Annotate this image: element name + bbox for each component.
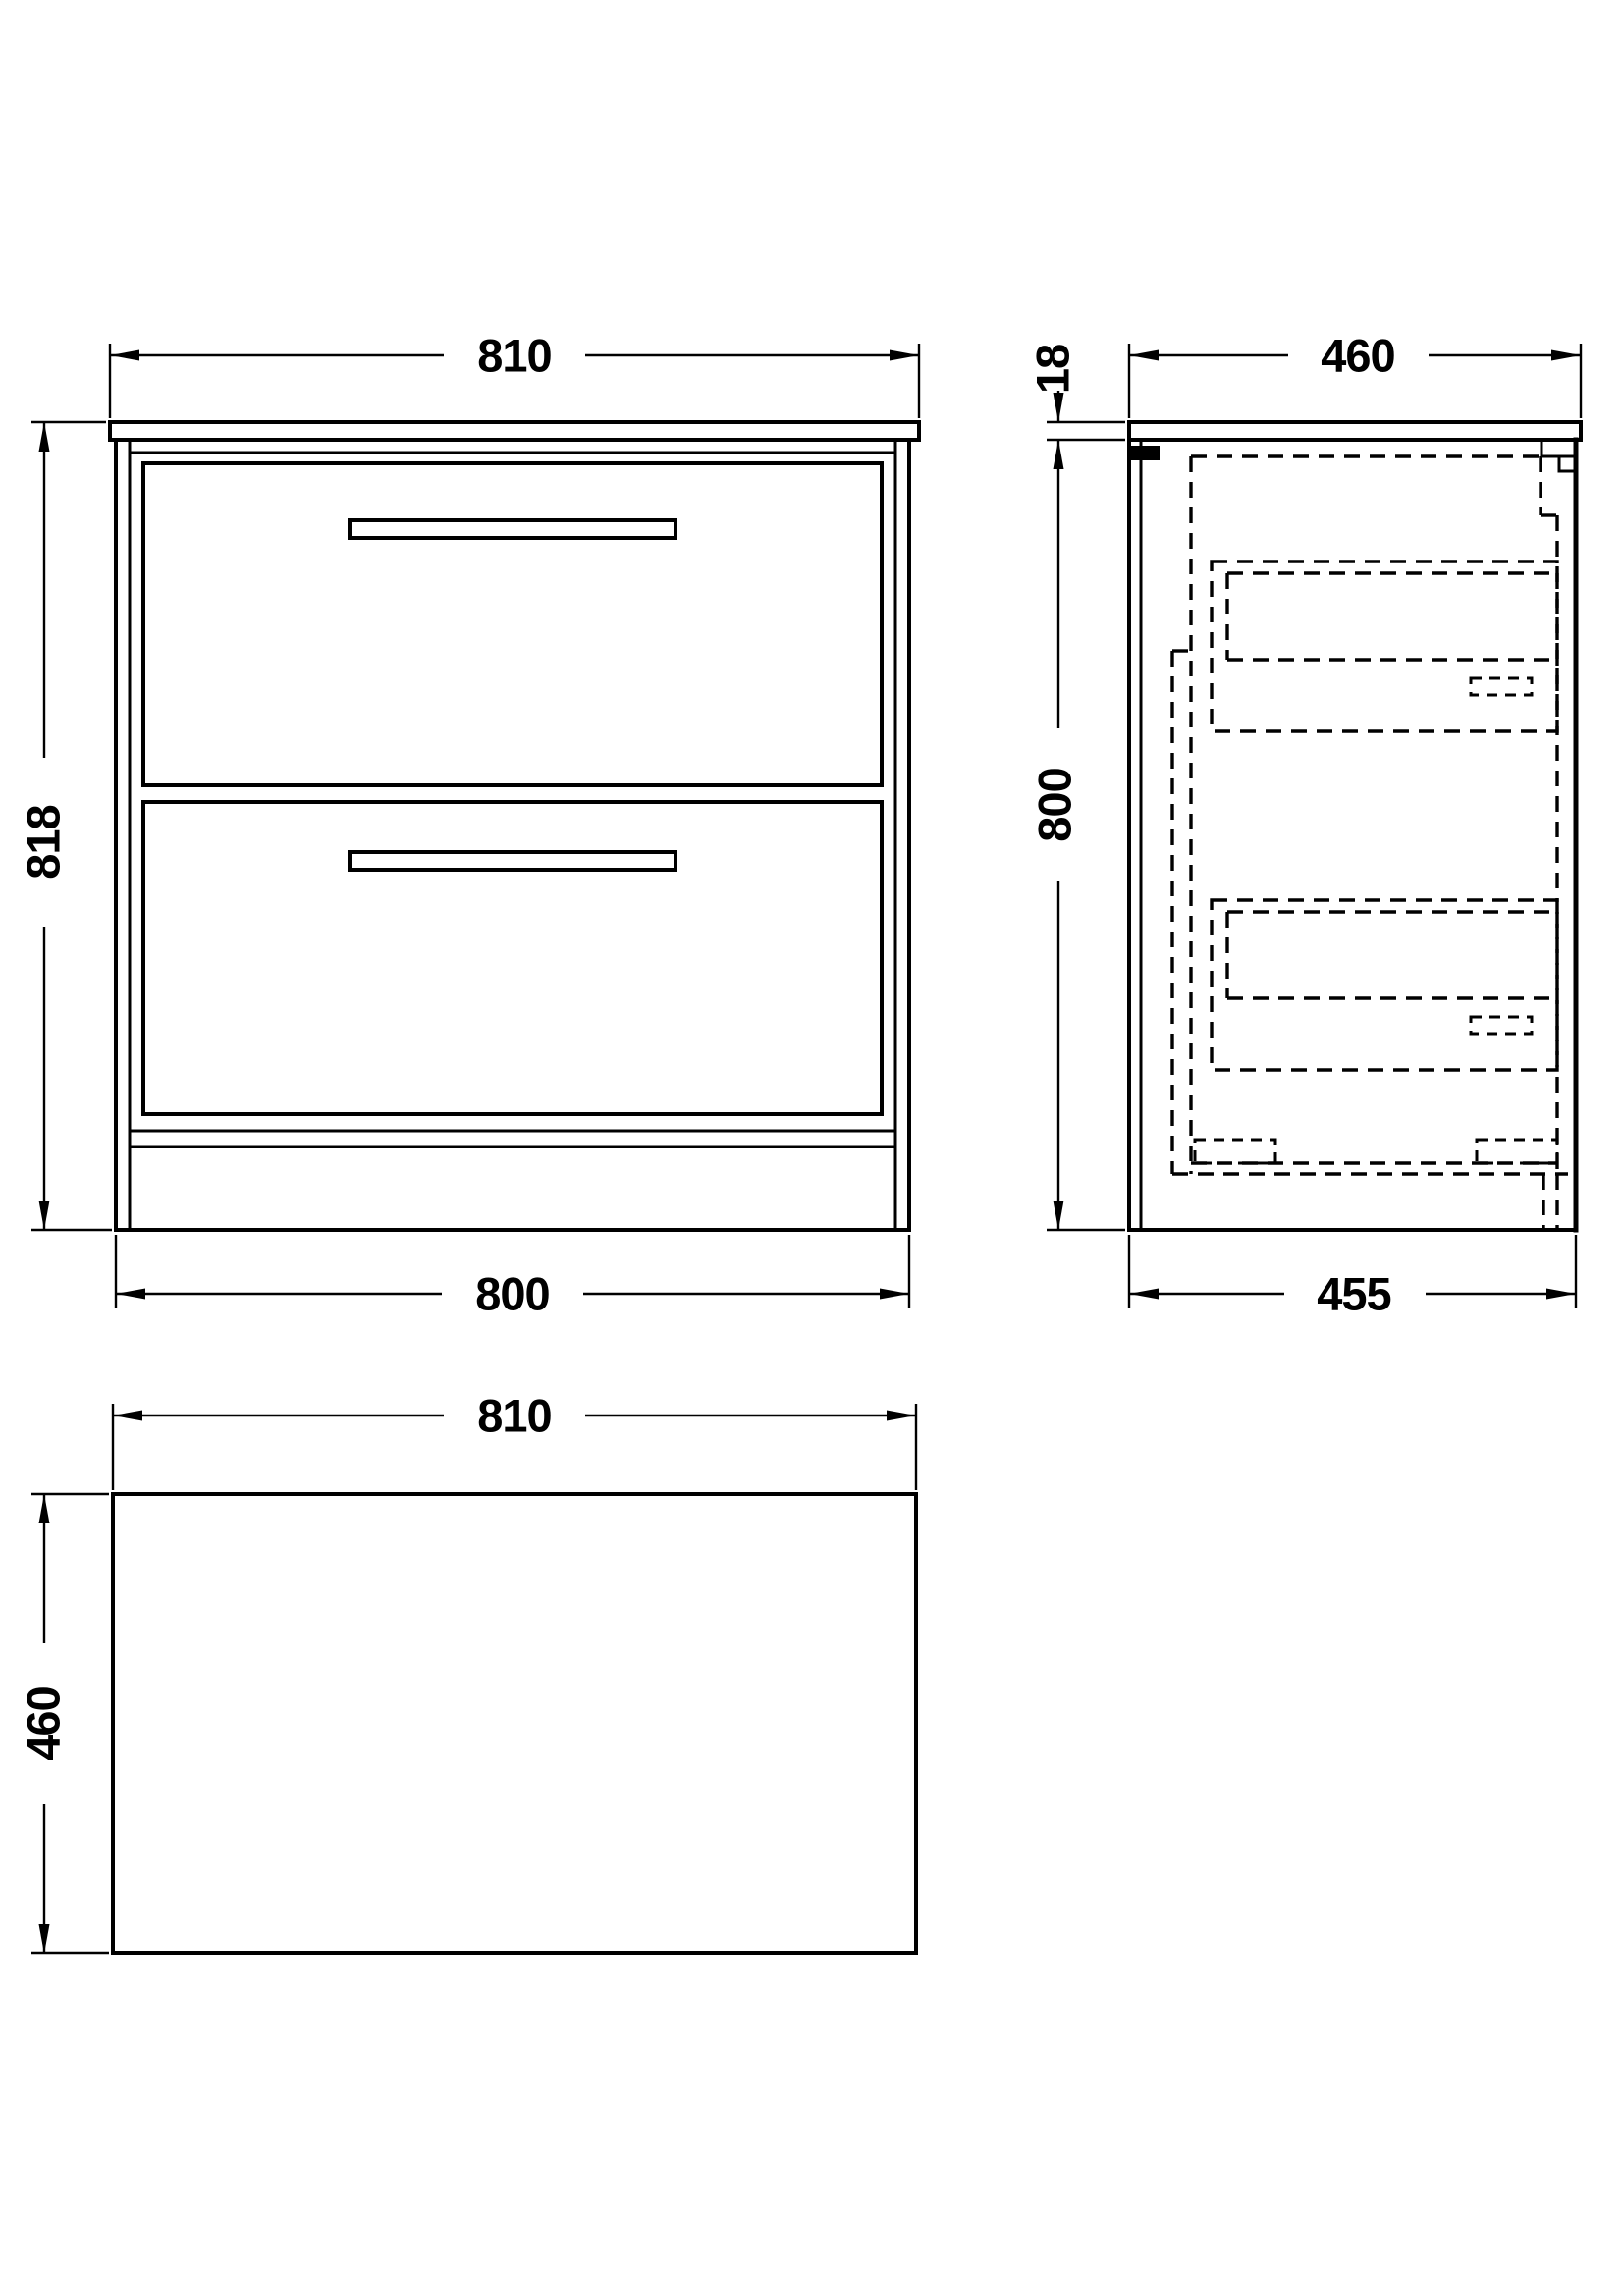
- dimension-label-810: 810: [477, 330, 551, 382]
- dimension-label-818: 818: [18, 805, 70, 879]
- dimension-label-800: 800: [475, 1268, 549, 1320]
- dimension-label-810: 810: [477, 1390, 551, 1442]
- dimension-label-460: 460: [1321, 330, 1394, 382]
- drawer-handle-2: [350, 852, 676, 870]
- dimension-label-460: 460: [18, 1686, 70, 1760]
- side-fixing-bracket: [1131, 447, 1159, 459]
- dimension-label-18: 18: [1027, 345, 1079, 394]
- dimension-label-800: 800: [1029, 768, 1081, 841]
- vanity-unit-technical-drawing: 810 818 800: [0, 0, 1623, 2296]
- dimension-label-455: 455: [1317, 1268, 1390, 1320]
- drawer-handle-1: [350, 520, 676, 538]
- technical-drawing-page: 810 818 800: [0, 0, 1623, 2296]
